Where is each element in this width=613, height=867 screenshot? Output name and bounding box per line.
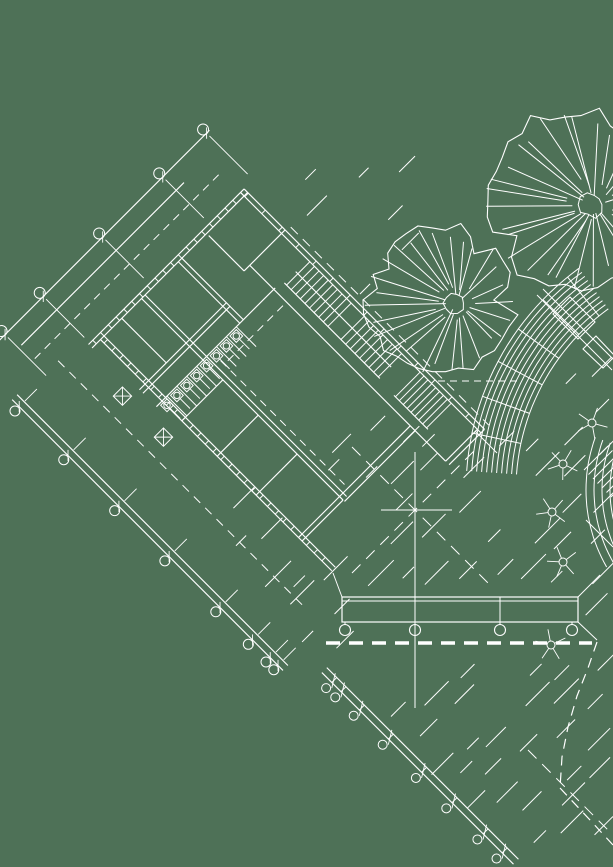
site-plan-page [0, 0, 613, 867]
background [0, 0, 613, 867]
site-plan-drawing [0, 0, 613, 867]
